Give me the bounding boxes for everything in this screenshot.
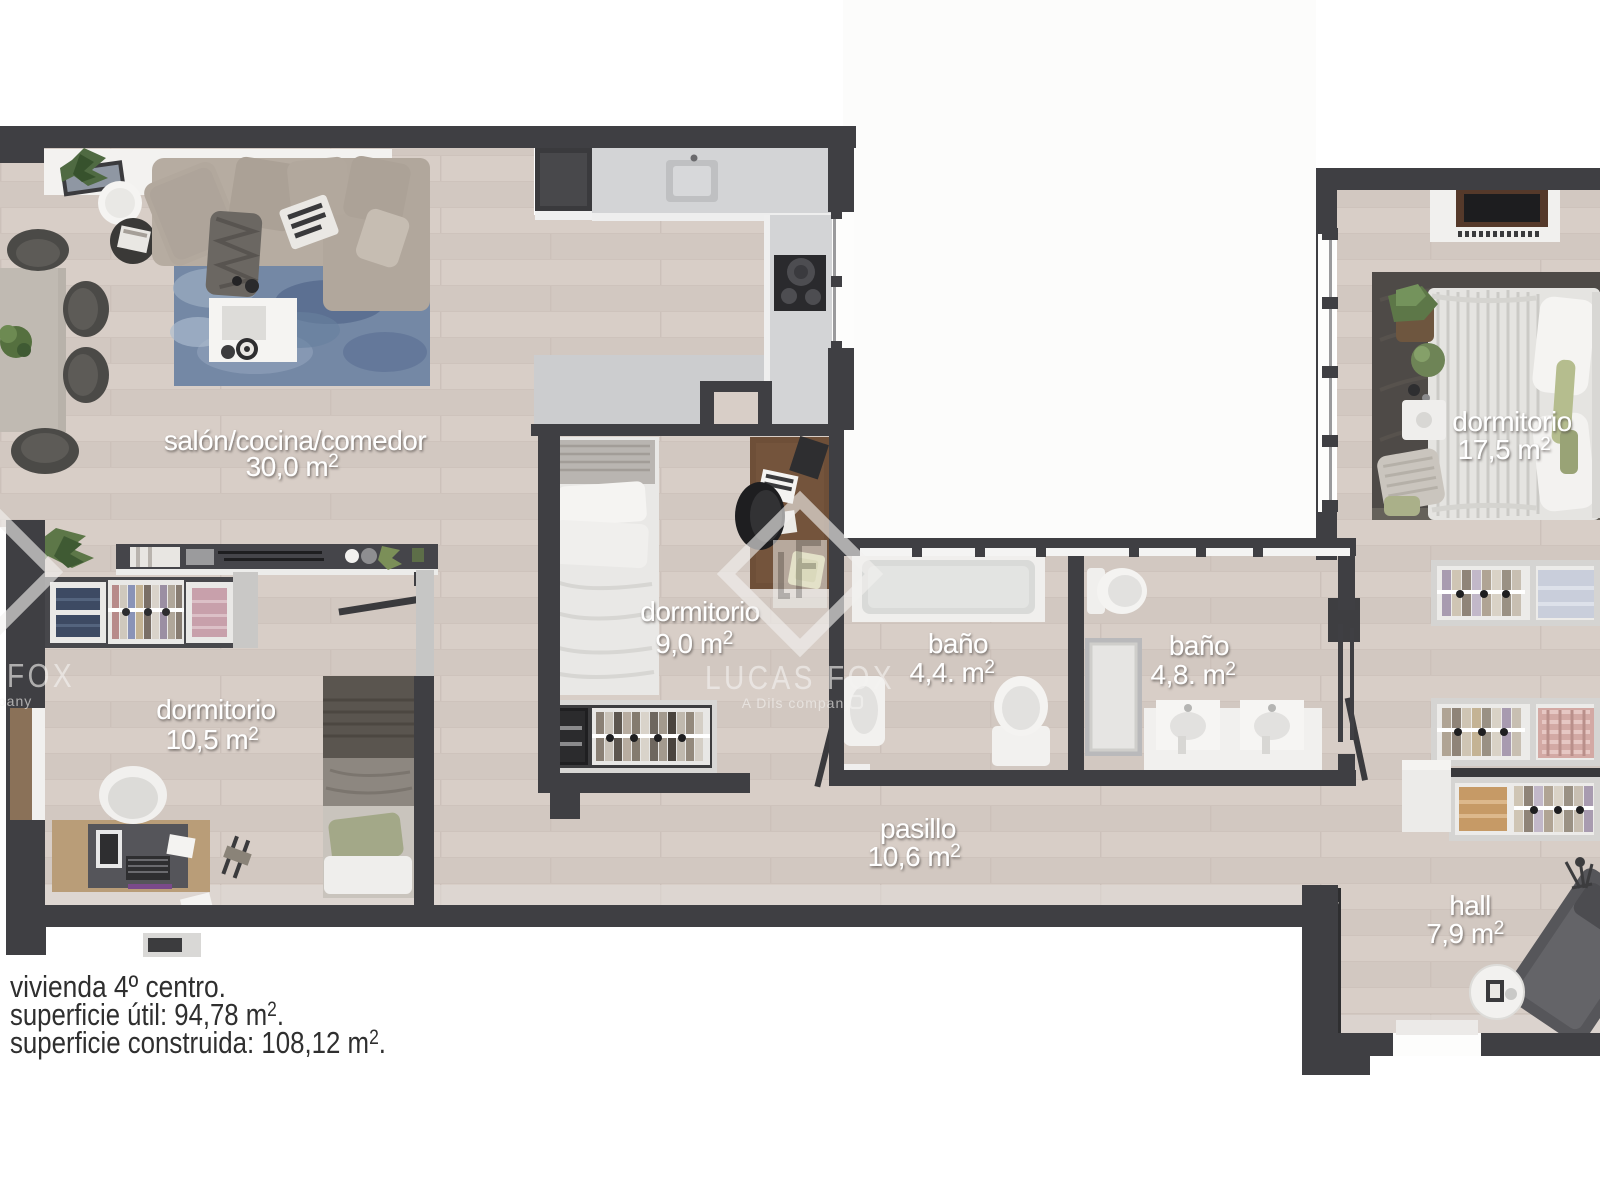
svg-text:LUCAS FOX: LUCAS FOX <box>705 659 895 696</box>
svg-text:LUCAS FOX: LUCAS FOX <box>0 657 75 694</box>
svg-text:4,8. m2: 4,8. m2 <box>1151 659 1236 690</box>
svg-text:17,5 m2: 17,5 m2 <box>1458 434 1551 465</box>
svg-text:10,5 m2: 10,5 m2 <box>166 724 259 755</box>
svg-text:dormitorio: dormitorio <box>640 596 759 627</box>
svg-text:baño: baño <box>928 628 988 659</box>
svg-text:dormitorio: dormitorio <box>1452 406 1571 437</box>
svg-text:A Dils company: A Dils company <box>0 693 32 709</box>
svg-text:9,0 m2: 9,0 m2 <box>655 628 733 659</box>
svg-text:dormitorio: dormitorio <box>156 694 275 725</box>
svg-text:A Dils company: A Dils company <box>742 695 852 711</box>
svg-text:pasillo: pasillo <box>880 813 956 844</box>
svg-text:4,4. m2: 4,4. m2 <box>910 657 995 688</box>
svg-text:10,6 m2: 10,6 m2 <box>868 841 961 872</box>
svg-text:30,0 m2: 30,0 m2 <box>246 451 339 482</box>
svg-text:baño: baño <box>1169 630 1229 661</box>
svg-text:7,9 m2: 7,9 m2 <box>1426 918 1504 949</box>
svg-text:superficie construida: 108,12: superficie construida: 108,12 m2. <box>10 1025 386 1060</box>
svg-text:hall: hall <box>1449 890 1491 921</box>
